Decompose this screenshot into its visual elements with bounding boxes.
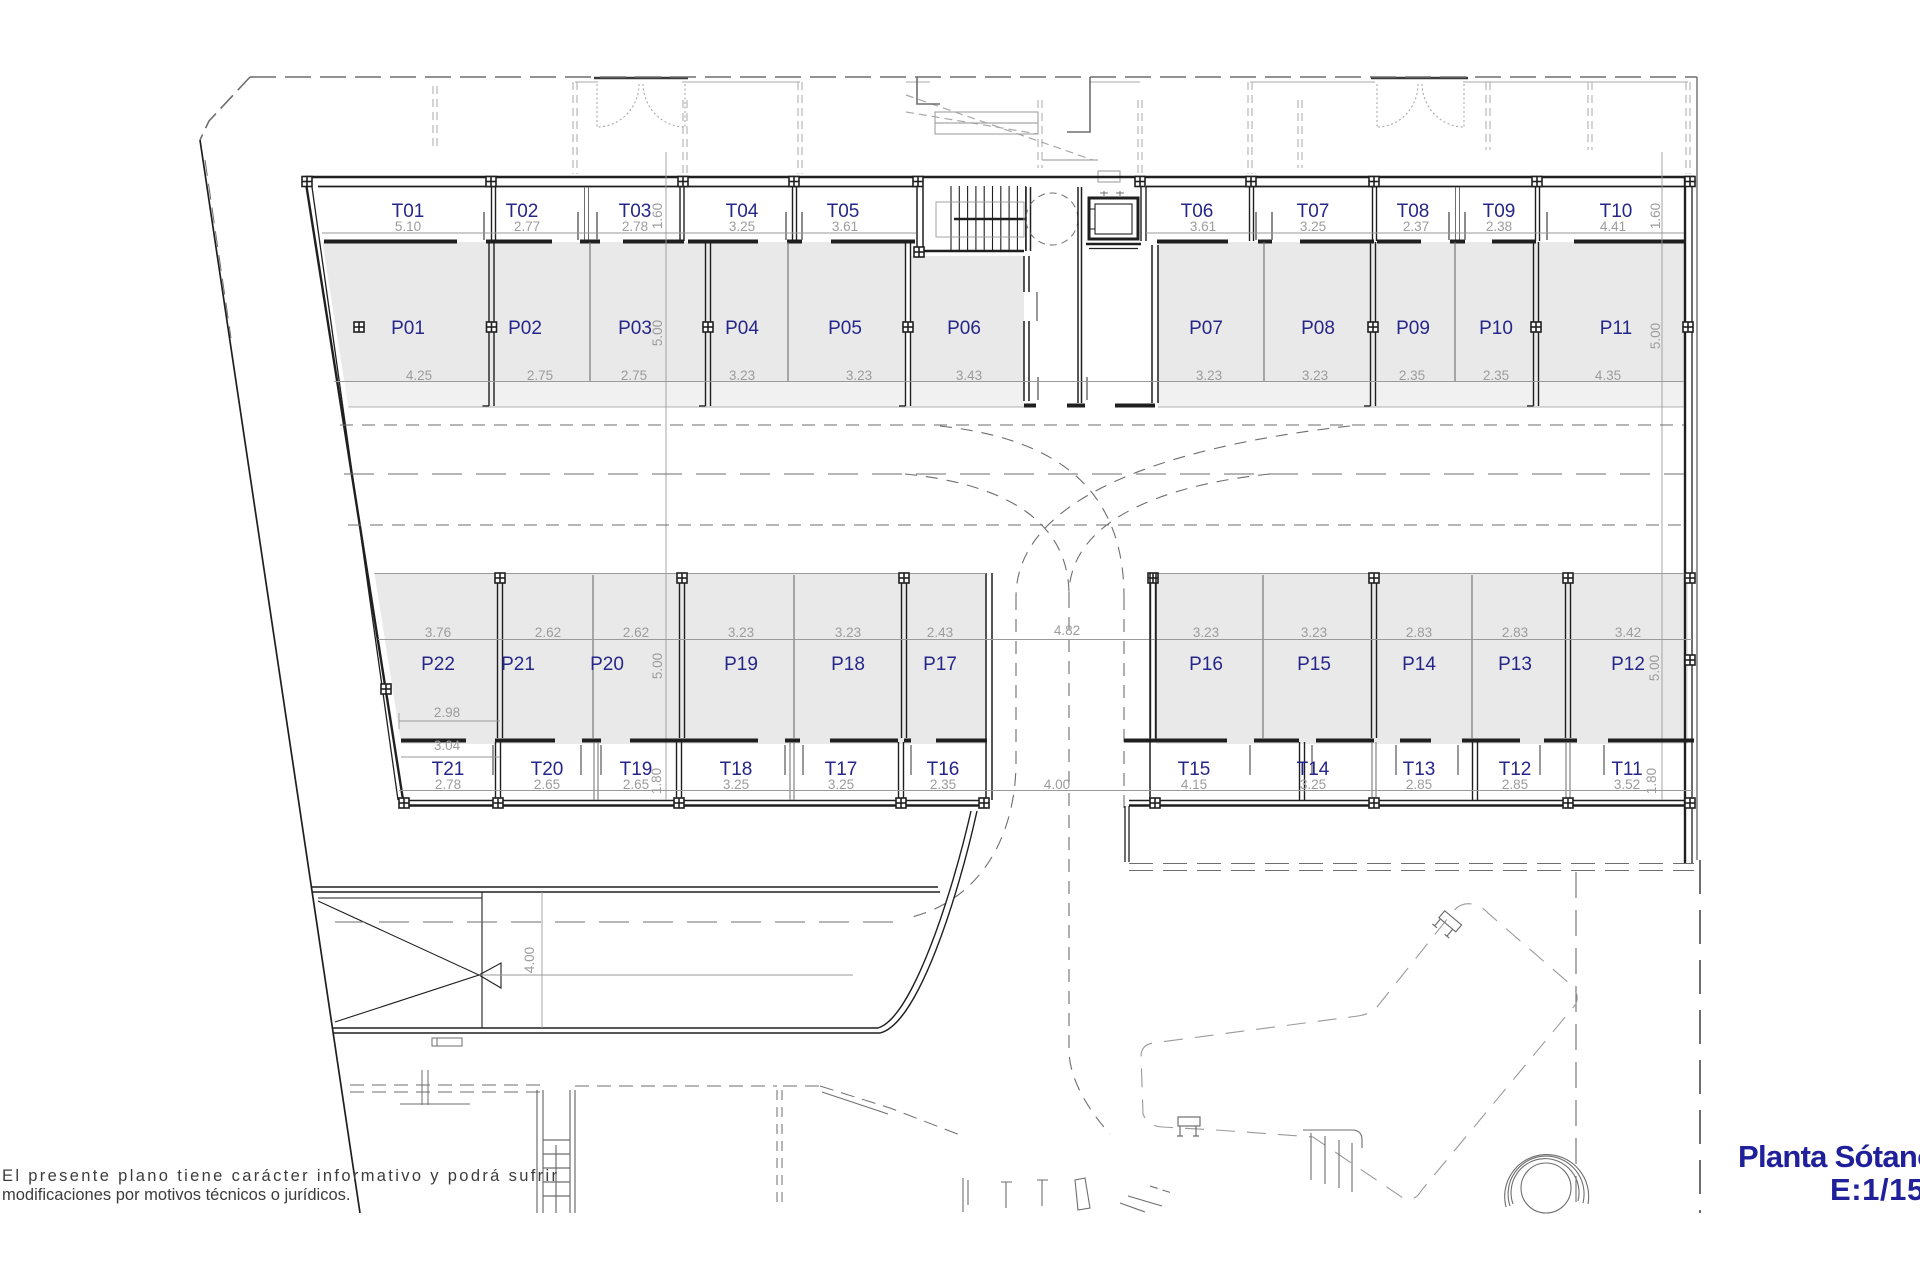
svg-text:5.10: 5.10	[395, 219, 421, 234]
svg-text:P08: P08	[1301, 318, 1335, 339]
svg-text:P05: P05	[828, 318, 862, 339]
svg-text:2.85: 2.85	[1406, 777, 1432, 792]
svg-text:4.35: 4.35	[1595, 368, 1621, 383]
svg-text:P07: P07	[1189, 318, 1223, 339]
svg-text:2.35: 2.35	[1399, 368, 1425, 383]
svg-text:4.82: 4.82	[1054, 623, 1080, 638]
svg-text:2.43: 2.43	[927, 625, 953, 640]
svg-text:P11: P11	[1600, 318, 1632, 339]
svg-text:2.75: 2.75	[527, 368, 553, 383]
svg-text:P06: P06	[947, 318, 981, 339]
svg-text:3.23: 3.23	[729, 368, 755, 383]
svg-text:2.37: 2.37	[1403, 219, 1429, 234]
svg-text:2.38: 2.38	[1486, 219, 1512, 234]
svg-text:P03: P03	[618, 318, 652, 339]
svg-text:2.78: 2.78	[622, 219, 648, 234]
svg-text:P18: P18	[831, 654, 865, 675]
svg-text:5.00: 5.00	[1647, 655, 1662, 681]
svg-text:P02: P02	[508, 318, 542, 339]
svg-text:3.04: 3.04	[434, 738, 461, 753]
svg-text:3.23: 3.23	[1301, 625, 1327, 640]
svg-text:P10: P10	[1479, 318, 1513, 339]
svg-text:3.23: 3.23	[835, 625, 861, 640]
svg-text:P14: P14	[1402, 654, 1436, 675]
svg-text:2.62: 2.62	[535, 625, 561, 640]
svg-text:1.60: 1.60	[1648, 203, 1663, 229]
svg-text:3.42: 3.42	[1615, 625, 1641, 640]
svg-text:3.43: 3.43	[956, 368, 982, 383]
svg-text:2.77: 2.77	[514, 219, 540, 234]
svg-text:2.62: 2.62	[623, 625, 649, 640]
svg-text:El presente plano tiene caráct: El presente plano tiene carácter informa…	[2, 1167, 557, 1185]
svg-text:3.25: 3.25	[723, 777, 749, 792]
svg-text:2.75: 2.75	[621, 368, 647, 383]
svg-text:P01: P01	[391, 318, 425, 339]
svg-text:3.23: 3.23	[1193, 625, 1219, 640]
svg-text:P17: P17	[923, 654, 957, 675]
svg-text:5.00: 5.00	[1648, 323, 1663, 349]
svg-text:2.98: 2.98	[434, 705, 460, 720]
svg-text:3.52: 3.52	[1614, 777, 1640, 792]
svg-text:2.65: 2.65	[623, 777, 649, 792]
svg-text:3.25: 3.25	[828, 777, 854, 792]
svg-text:2.83: 2.83	[1502, 625, 1528, 640]
svg-text:3.25: 3.25	[1300, 777, 1326, 792]
svg-text:2.35: 2.35	[1483, 368, 1509, 383]
svg-text:P21: P21	[501, 654, 535, 675]
svg-text:3.61: 3.61	[1190, 219, 1216, 234]
svg-text:3.23: 3.23	[1196, 368, 1222, 383]
svg-text:P13: P13	[1498, 654, 1532, 675]
svg-text:3.61: 3.61	[832, 219, 858, 234]
svg-text:2.78: 2.78	[435, 777, 461, 792]
svg-text:4.15: 4.15	[1181, 777, 1207, 792]
svg-text:5.00: 5.00	[650, 653, 665, 679]
svg-text:P04: P04	[725, 318, 759, 339]
svg-text:2.85: 2.85	[1502, 777, 1528, 792]
svg-text:2.35: 2.35	[930, 777, 956, 792]
svg-text:3.76: 3.76	[425, 625, 451, 640]
svg-text:P19: P19	[724, 654, 758, 675]
svg-text:4.25: 4.25	[406, 368, 432, 383]
svg-text:3.25: 3.25	[1300, 219, 1326, 234]
svg-text:4.00: 4.00	[522, 947, 537, 973]
svg-text:2.83: 2.83	[1406, 625, 1432, 640]
svg-text:P15: P15	[1297, 654, 1331, 675]
svg-text:P22: P22	[421, 654, 455, 675]
svg-text:P12: P12	[1611, 654, 1645, 675]
svg-text:1.60: 1.60	[650, 203, 665, 229]
svg-text:4.00: 4.00	[1044, 777, 1070, 792]
svg-text:3.23: 3.23	[1302, 368, 1328, 383]
svg-text:Planta Sótano: Planta Sótano	[1738, 1139, 1920, 1174]
svg-text:3.23: 3.23	[728, 625, 754, 640]
svg-text:P16: P16	[1189, 654, 1223, 675]
svg-text:5.00: 5.00	[650, 320, 665, 346]
svg-text:P09: P09	[1396, 318, 1430, 339]
svg-text:E:1/150: E:1/150	[1830, 1172, 1920, 1207]
svg-text:3.23: 3.23	[846, 368, 872, 383]
svg-text:4.41: 4.41	[1600, 219, 1626, 234]
svg-text:modificaciones por motivos téc: modificaciones por motivos técnicos o ju…	[2, 1186, 350, 1204]
svg-text:3.25: 3.25	[729, 219, 755, 234]
svg-text:2.65: 2.65	[534, 777, 560, 792]
svg-text:P20: P20	[590, 654, 624, 675]
